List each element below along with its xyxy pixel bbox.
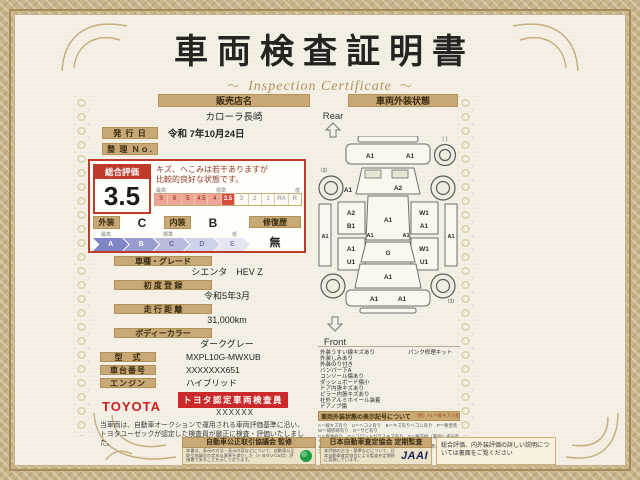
overall-rating-label: 総合評価 (95, 166, 149, 179)
interior-grade: B (191, 216, 235, 231)
zone-quarter-left-bottom: B1 (347, 223, 356, 230)
zone-windshield: G (385, 250, 390, 257)
mileage-value: 31,000km (148, 314, 306, 325)
exterior-label: 外装 (93, 216, 120, 229)
condition-notes-list: 外装うすい線キズあり 外装しみあり 外装のり付き バンパー下A コンソール傷あり… (320, 350, 408, 410)
first-registration-label: 初 度 登 録 (114, 280, 212, 290)
issue-date-value: 令和 7年10月24日 (168, 126, 245, 140)
scale-seg: R (289, 194, 301, 205)
certified-inspector-badge: トヨタ認定車両検査員 (178, 392, 288, 408)
grade-seg: E (215, 238, 250, 251)
overall-score-box: 総合評価 3.5 (93, 164, 151, 214)
jaai-box: 日本自動車査定協会 定期監査 本評価の方法・基準などについて、日本自動車査定協会… (320, 437, 432, 465)
model-code-label: 型 式 (100, 352, 156, 362)
model-code-row: 型 式 MXPL10G-MWXUB (88, 351, 310, 362)
chassis-no-row: 車台番号 XXXXXXX651 (88, 364, 310, 375)
grade-label-low: 低 (232, 231, 237, 238)
scale-seg: RA (275, 194, 288, 205)
zone-front-bumper-left: A1 (370, 296, 379, 303)
front-arrow-icon (327, 316, 343, 332)
equipment-note: パンク修理キット (408, 350, 460, 410)
zone-rear-gate: A2 (394, 185, 403, 192)
chassis-no-value: XXXXXXX651 (186, 365, 240, 375)
tread-depth-front-right: 〔3〕 (445, 299, 458, 305)
engine-label: エンジン (100, 378, 156, 388)
zone-side-left: A1 (321, 234, 328, 240)
overall-rating-box: 総合評価 3.5 キズ、へこみは若干ありますが 比較的良好な状態です。 最高 標… (88, 159, 306, 253)
zone-rocker-left: A1 (366, 233, 373, 239)
exterior-interior-grades: 外装 C 内装 B (93, 216, 245, 231)
scale-seg: 6 (168, 194, 181, 205)
legend-line: A＝線キズ有り U＝ヘコミ有り B＝キズ有りヘコミ有り P＝要塗装 W＝補修跡有… (318, 423, 460, 434)
exterior-condition-panel: 車両外装状態 Rear A1 A1 〔 〕 A2 A1 〔3〕 A1 A1 A2… (318, 94, 460, 444)
scale-label-high: 最高 (156, 187, 166, 194)
zone-quarter-left-top: A2 (347, 210, 356, 217)
jaai-body: 本評価の方法・基準などについて、日本自動車査定協会による監査を定期的に実施してい… (320, 448, 432, 465)
model-grade-value: シエンタ HEV Z (148, 266, 306, 277)
grade-label-high: 最高 (101, 231, 111, 238)
zone-hood: A1 (384, 274, 393, 281)
fair-trade-header: 自動車公正取引協議会 監修 (182, 437, 316, 448)
inspector-row: TOYOTA トヨタ認定車両検査員 XXXXXX (88, 392, 310, 418)
scale-seg: 2 (249, 194, 262, 205)
rear-label: Rear (320, 111, 346, 122)
overall-score: 3.5 (95, 179, 149, 212)
legend-title: 車両外装状態の表示記号について (321, 412, 411, 421)
model-grade-label: 車種・グレード (114, 256, 212, 266)
repair-history-value: 無 (249, 234, 301, 250)
grade-scale-bar: A B C D E (93, 238, 245, 251)
spare-tire-mark: 〔 〕 (439, 137, 450, 143)
subtitle-text: Inspection Certificate (248, 79, 392, 94)
zone-rear-bumper-left: A1 (366, 153, 375, 160)
grade-label-mid: 標準 (163, 231, 173, 238)
zone-rocker-right: A1 (402, 233, 409, 239)
interior-label: 内装 (164, 216, 191, 229)
score-scale-bar: S 6 5 4.5 4 3.5 3 2 1 RA R (154, 193, 302, 206)
legend-header: 車両外装状態の表示記号について （例）A1＝線キズ小程度有り (318, 411, 460, 421)
condition-note: ドアノブ傷 (320, 404, 408, 410)
issue-date-label: 発 行 日 (102, 127, 158, 139)
scale-seg: 5 (182, 194, 195, 205)
zone-door-left-top: A1 (347, 246, 356, 253)
fair-trade-mark-icon (300, 450, 312, 462)
engine-value: ハイブリッド (186, 377, 237, 389)
ref-no-row: 整 理 Ｎｏ. (88, 142, 310, 156)
zone-door-right-top: W1 (419, 246, 429, 253)
scale-seg: 1 (262, 194, 275, 205)
zone-quarter-right-bottom: A1 (420, 223, 429, 230)
rating-comment-line1: キズ、へこみは若干ありますが (156, 165, 302, 175)
scale-seg: 4.5 (195, 194, 208, 205)
car-diagram: A1 A1 〔 〕 A2 A1 〔3〕 A1 A1 A2 B1 A1 U1 W1… (318, 136, 458, 314)
rating-comment-line2: 比較的良好な状態です。 (156, 175, 302, 185)
issue-date-row: 発 行 日 令和 7年10月24日 (88, 126, 310, 140)
exterior-grade: C (120, 216, 164, 231)
title-block: 車両検査証明書 ～Inspection Certificate～ (0, 24, 640, 95)
fair-trade-text: 本書は、表示の方法・表示内容などについて、自動車公正取引協議会の定める基準を満た… (186, 449, 297, 464)
repair-history: 修復歴 無 (249, 216, 301, 250)
zone-rear-bumper-right: A1 (406, 153, 415, 160)
zone-side-right: A1 (447, 234, 454, 240)
first-registration-value: 令和5年3月 (148, 290, 306, 301)
score-scale-labels: 最高 標準 低 (154, 187, 302, 193)
zone-front-bumper-right: A1 (398, 296, 407, 303)
seller-name-value: カローラ長崎 (158, 107, 310, 124)
seller-name-header: 販売店名 (158, 94, 310, 107)
subtitle-decor-right: ～ (400, 79, 413, 93)
jaai-header: 日本自動車査定協会 定期監査 (320, 437, 432, 448)
zone-door-right-bottom: U1 (420, 259, 429, 266)
back-side-note: 総合評価、内外装評価の詳しい説明については裏面をご覧ください (437, 441, 555, 461)
grade-scale-labels: 最高 標準 低 (93, 231, 245, 237)
grade-seg: D (184, 238, 219, 251)
jaai-text: 本評価の方法・基準などについて、日本自動車査定協会による監査を定期的に実施してい… (324, 449, 398, 464)
chassis-no-label: 車台番号 (100, 365, 156, 375)
front-indicator: Front (322, 316, 348, 348)
scale-seg-current: 3.5 (222, 194, 235, 205)
page-title: 車両検査証明書 (0, 24, 640, 73)
condition-notes: 外装うすい線キズあり 外装しみあり 外装のり付き バンパー下A コンソール傷あり… (320, 350, 460, 410)
body-color-label: ボディーカラー (114, 328, 212, 338)
scale-seg: 3 (235, 194, 248, 205)
zone-roof: A1 (384, 217, 393, 224)
zone-door-left-bottom: U1 (347, 259, 356, 266)
repair-history-label: 修復歴 (249, 216, 301, 228)
rating-comment: キズ、へこみは若干ありますが 比較的良好な状態です。 (156, 165, 302, 186)
grade-seg: B (123, 238, 158, 251)
grade-seg: C (154, 238, 189, 251)
scale-seg: 4 (208, 194, 221, 205)
vehicle-info-column: 販売店名 カローラ長崎 発 行 日 令和 7年10月24日 整 理 Ｎｏ. 総合… (88, 94, 310, 449)
mileage-label: 走 行 距 離 (114, 304, 212, 314)
ref-no-label: 整 理 Ｎｏ. (102, 143, 158, 155)
page-subtitle: ～Inspection Certificate～ (0, 77, 640, 95)
scale-label-mid: 標準 (216, 187, 226, 194)
jaai-logo: JAAI (401, 450, 428, 462)
fair-trade-box: 自動車公正取引協議会 監修 本書は、表示の方法・表示内容などについて、自動車公正… (182, 437, 316, 465)
left-chain-ornament (74, 96, 89, 436)
model-code-value: MXPL10G-MWXUB (186, 352, 261, 362)
grade-seg: A (93, 238, 128, 251)
back-side-note-box: 総合評価、内外装評価の詳しい説明については裏面をご覧ください (436, 437, 556, 465)
tread-depth-rear-left: 〔3〕 (318, 168, 330, 174)
zone-rear-fender-left: A1 (344, 187, 353, 194)
inspector-id: XXXXXX (216, 408, 254, 417)
toyota-logo: TOYOTA (102, 399, 161, 414)
engine-row: エンジン ハイブリッド (88, 377, 310, 388)
exterior-condition-header: 車両外装状態 (348, 94, 458, 107)
scale-seg: S (155, 194, 168, 205)
subtitle-decor-left: ～ (227, 79, 240, 93)
body-color-value: ダークグレー (148, 338, 306, 349)
legend-example: （例）A1＝線キズ小程度有り (414, 413, 460, 419)
right-chain-ornament (458, 96, 473, 436)
fair-trade-body: 本書は、表示の方法・表示内容などについて、自動車公正取引協議会の定める基準を満た… (182, 448, 316, 465)
zone-quarter-right-top: W1 (419, 210, 429, 217)
scale-label-low: 低 (295, 187, 300, 194)
notes-divider (318, 346, 460, 347)
score-scale: 最高 標準 低 S 6 5 4.5 4 3.5 3 2 1 RA R (154, 187, 302, 206)
certificate-footer: 自動車公正取引協議会 監修 本書は、表示の方法・表示内容などについて、自動車公正… (182, 437, 556, 465)
